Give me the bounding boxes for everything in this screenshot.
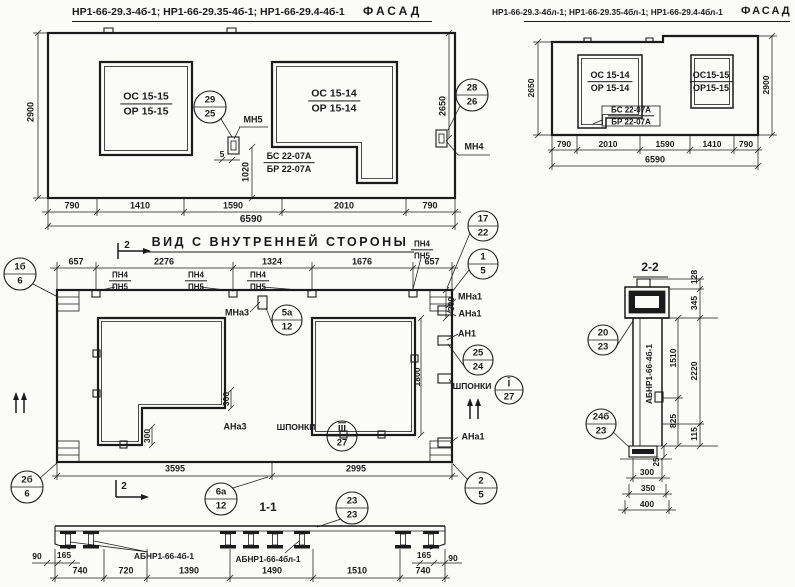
callout-26: 26	[467, 97, 478, 107]
dim-2900: 2900	[762, 76, 771, 95]
dim-2650: 2650	[439, 96, 448, 116]
callout-29: 29	[205, 95, 216, 105]
dim-350: 350	[641, 484, 655, 493]
dim-790: 790	[739, 140, 753, 149]
dim-6590: 6590	[240, 215, 262, 225]
callout-27: 27	[504, 392, 515, 402]
window-mark-bottom: ОР 15-14	[308, 102, 360, 115]
dim-165: 165	[417, 551, 431, 560]
dim-2220: 2220	[690, 362, 699, 381]
dim-2010: 2010	[599, 140, 618, 149]
callout-2b: 2б	[21, 475, 32, 485]
embed-mark-bottom: ПН5	[411, 251, 433, 261]
balcony-mark-top: БС 22-07А	[264, 151, 315, 163]
dim-1800: 1800	[413, 368, 422, 387]
balcony-door-mark: БС 22-07А БР 22-07А	[264, 151, 315, 175]
embed-mark-bottom: ПН5	[247, 282, 269, 292]
dim-1510: 1510	[669, 349, 678, 368]
embed-mark-pn4-pn5: ПН4 ПН5	[109, 270, 131, 291]
window-mark-top: ОС15-15	[690, 70, 733, 82]
embed-mark-top: ПН4	[185, 270, 207, 281]
callout-23: 23	[347, 496, 358, 506]
beam-mark-abnr-4b-1: АБНР1-66-4б-1	[134, 552, 194, 560]
callout-23: 23	[596, 426, 607, 436]
callout-23: 23	[347, 510, 358, 520]
window-mark-os15-15: ОС15-15 ОР15-15	[690, 70, 733, 94]
callout-25: 25	[205, 109, 216, 119]
callout-1b: 1б	[14, 262, 25, 272]
window-mark-top: ОС 15-14	[587, 70, 632, 82]
balcony-door-mark: БС 22-07А БР 22-07А	[608, 105, 654, 126]
callout-22: 22	[478, 228, 489, 238]
dim-1490: 1490	[262, 567, 282, 576]
callout-12: 12	[282, 322, 293, 332]
dim-657: 657	[68, 258, 83, 267]
embed-mark-pn4-pn5: ПН4 ПН5	[185, 270, 207, 291]
embed-mark-pn4-pn5: ПН4 ПН5	[411, 239, 433, 260]
callout-24b: 24б	[593, 412, 609, 422]
window-mark-top: ОС 15-15	[120, 90, 172, 104]
callout-5: 5	[478, 490, 483, 500]
beam-mark-abnr-4bl-1: АБНР1-66-4бл-1	[235, 555, 300, 563]
dim-165: 165	[57, 551, 71, 560]
dim-1390: 1390	[179, 567, 199, 576]
embed-mark-top: ПН4	[247, 270, 269, 281]
embed-mark-top: ПН4	[411, 239, 433, 250]
section-1-1-title: 1-1	[259, 501, 276, 513]
dim-5: 5	[220, 150, 225, 159]
callout-24: 24	[473, 362, 484, 372]
embed-mark-bottom: ПН5	[109, 282, 131, 292]
dim-2276: 2276	[154, 258, 174, 267]
window-mark-os15-14: ОС 15-14 ОР 15-14	[587, 70, 632, 94]
window-mark-top: ОС 15-14	[308, 87, 360, 101]
balcony-mark-top: БС 22-07А	[608, 105, 654, 116]
callout-12: 12	[216, 501, 227, 511]
dim-1410: 1410	[703, 140, 722, 149]
dim-400: 400	[640, 500, 654, 509]
section-mark-2-top: 2	[124, 241, 130, 251]
embed-mark-pn4-pn5: ПН4 ПН5	[247, 270, 269, 291]
dim-825: 825	[669, 414, 678, 428]
embed-label-mn5: МН5	[243, 116, 262, 125]
dim-6590: 6590	[645, 156, 665, 165]
dim-1020: 1020	[242, 162, 251, 182]
dim-90: 90	[32, 552, 41, 561]
facade-right-view-title: ФАСАД	[741, 6, 792, 17]
dim-1590: 1590	[223, 202, 243, 211]
inner-view-title: ВИД С ВНУТРЕННЕЙ СТОРОНЫ	[152, 236, 409, 249]
dim-740: 740	[415, 567, 430, 576]
callout-20: 20	[598, 328, 609, 338]
label-shponki: ШПОНКИ	[277, 423, 316, 432]
callout-28: 28	[467, 83, 478, 93]
dim-2995: 2995	[346, 465, 366, 474]
dim-1510: 1510	[347, 567, 367, 576]
window-mark-bottom: ОР 15-14	[587, 83, 632, 94]
callout-6: 6	[17, 276, 22, 286]
callout-25: 25	[473, 348, 484, 358]
callout-1: 1	[480, 252, 485, 262]
dim-720: 720	[118, 567, 133, 576]
window-mark-bottom: ОР15-15	[690, 83, 733, 94]
dim-1590: 1590	[656, 140, 675, 149]
dim-1676: 1676	[352, 258, 372, 267]
facade-left-title-codes: НР1-66-29.3-4б-1; НР1-66-29.35-4б-1; НР1…	[72, 7, 345, 18]
window-mark-os15-15: ОС 15-15 ОР 15-15	[120, 90, 172, 117]
dim-345: 345	[690, 296, 699, 310]
dim-300: 300	[143, 429, 152, 443]
window-mark-os15-14: ОС 15-14 ОР 15-14	[308, 87, 360, 114]
facade-left-linework	[33, 22, 490, 231]
callout-23: 23	[598, 342, 609, 352]
dim-3595: 3595	[165, 465, 185, 474]
embed-mark-top: ПН4	[109, 270, 131, 281]
dim-790: 790	[557, 140, 571, 149]
callout-27: 27	[337, 438, 348, 448]
facade-left-view-title: ФАСАД	[363, 5, 422, 17]
section-2-2-title: 2-2	[641, 261, 658, 273]
balcony-mark-bottom: БР 22-07А	[264, 164, 315, 175]
embed-label-ana3: АНа3	[223, 423, 246, 432]
callout-6a: 6а	[216, 487, 227, 497]
dim-2650: 2650	[527, 79, 536, 98]
callout-5a: 5а	[282, 308, 293, 318]
section-mark-2-bottom: 2	[121, 482, 127, 492]
dim-1410: 1410	[130, 202, 150, 211]
embed-mark-bottom: ПН5	[185, 282, 207, 292]
embed-label-ana1: АНа1	[461, 433, 484, 442]
dim-25: 25	[653, 458, 661, 467]
dim-790: 790	[64, 202, 79, 211]
dim-790: 790	[422, 202, 437, 211]
dim-2900: 2900	[27, 102, 36, 122]
balcony-mark-bottom: БР 22-07А	[608, 117, 654, 127]
dim-1324: 1324	[262, 258, 282, 267]
embed-label-ana1: АНа1	[458, 310, 481, 319]
callout-2: 2	[478, 476, 483, 486]
callout-17: 17	[478, 214, 489, 224]
callout-5: 5	[480, 266, 485, 276]
dim-115: 115	[690, 427, 699, 441]
key-type-3: III	[338, 424, 346, 434]
blueprint-canvas: НР1-66-29.3-4б-1; НР1-66-29.35-4б-1; НР1…	[0, 0, 795, 587]
dim-2010: 2010	[334, 202, 354, 211]
dim-300: 300	[222, 392, 231, 406]
callout-6: 6	[24, 489, 29, 499]
dim-128: 128	[690, 270, 699, 284]
dim-740: 740	[72, 567, 87, 576]
window-mark-bottom: ОР 15-15	[120, 105, 172, 118]
facade-right-title-codes: НР1-66-29.3-4бл-1; НР1-66-29.35-4бл-1; Н…	[492, 8, 723, 16]
dim-300: 300	[640, 468, 654, 477]
dim-90: 90	[448, 554, 457, 563]
drawing-linework	[0, 0, 795, 587]
beam-mark-abnr-4b-1: АБНР1-66-4б-1	[645, 344, 653, 404]
embed-label-an1: АН1	[458, 330, 476, 339]
embed-label-mna1: МНа1	[458, 293, 482, 302]
dim-300: 300	[447, 297, 456, 311]
embed-label-mna3: МНа3	[225, 309, 249, 318]
key-type-1: I	[508, 379, 511, 389]
embed-label-mn4: МН4	[464, 143, 483, 152]
label-shponki: ШПОНКИ	[453, 382, 492, 391]
